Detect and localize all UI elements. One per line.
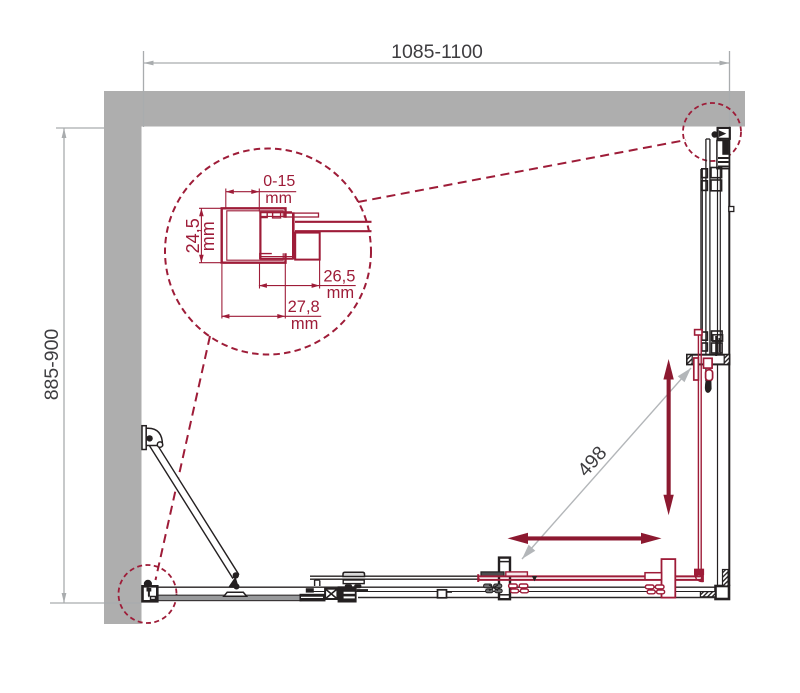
svg-text:0-15: 0-15	[263, 173, 295, 190]
svg-text:1085-1100: 1085-1100	[391, 41, 483, 63]
svg-text:mm: mm	[327, 284, 355, 302]
svg-text:mm: mm	[291, 315, 319, 333]
svg-text:mm: mm	[198, 221, 218, 251]
svg-text:27,8: 27,8	[288, 298, 320, 316]
svg-text:mm: mm	[265, 190, 292, 207]
svg-text:26,5: 26,5	[323, 267, 355, 285]
svg-text:885-900: 885-900	[41, 329, 63, 401]
